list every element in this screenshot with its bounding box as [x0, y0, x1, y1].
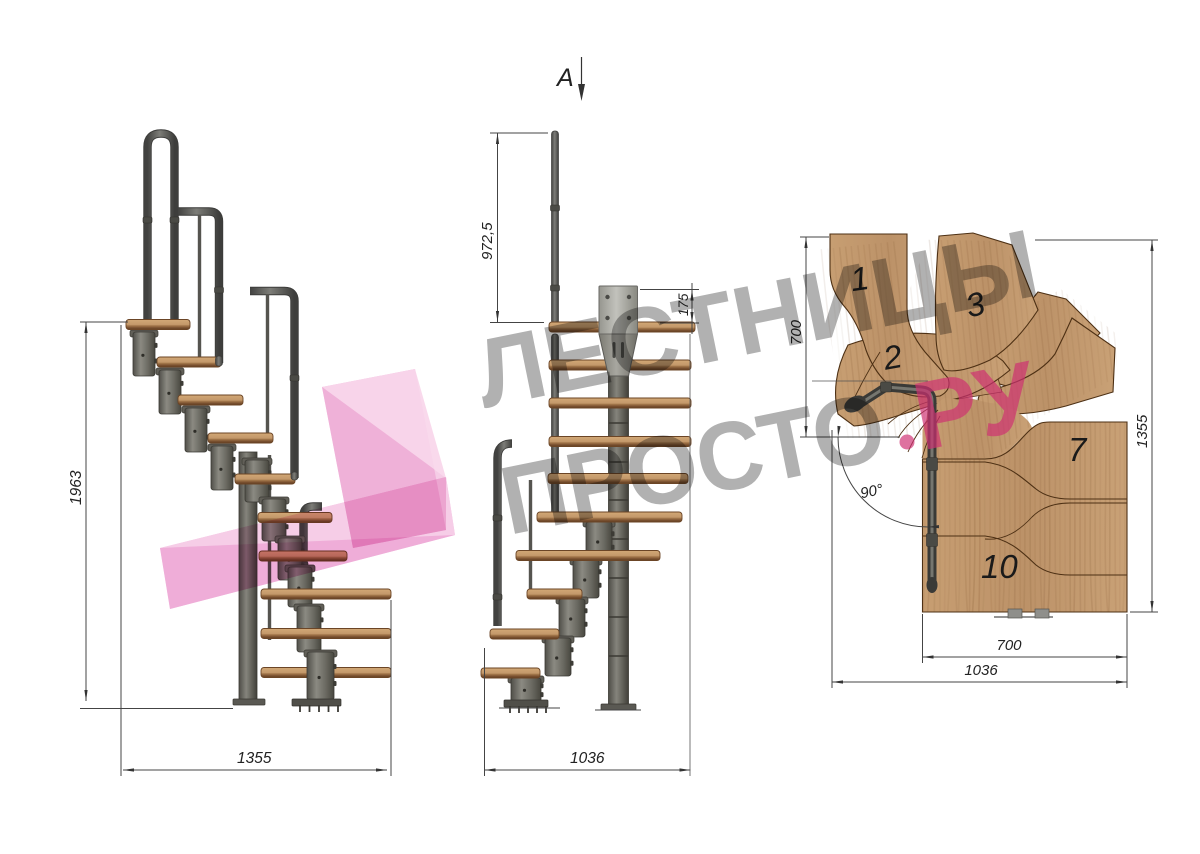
- svg-text:A: A: [555, 64, 574, 92]
- svg-text:972,5: 972,5: [479, 222, 496, 260]
- svg-text:10: 10: [981, 548, 1018, 585]
- svg-text:1355: 1355: [237, 750, 272, 767]
- svg-text:1036: 1036: [964, 662, 998, 679]
- svg-text:7: 7: [1068, 431, 1088, 468]
- svg-text:1963: 1963: [68, 470, 85, 505]
- svg-text:1355: 1355: [1134, 414, 1151, 448]
- svg-text:1036: 1036: [570, 750, 605, 767]
- svg-text:700: 700: [996, 637, 1022, 654]
